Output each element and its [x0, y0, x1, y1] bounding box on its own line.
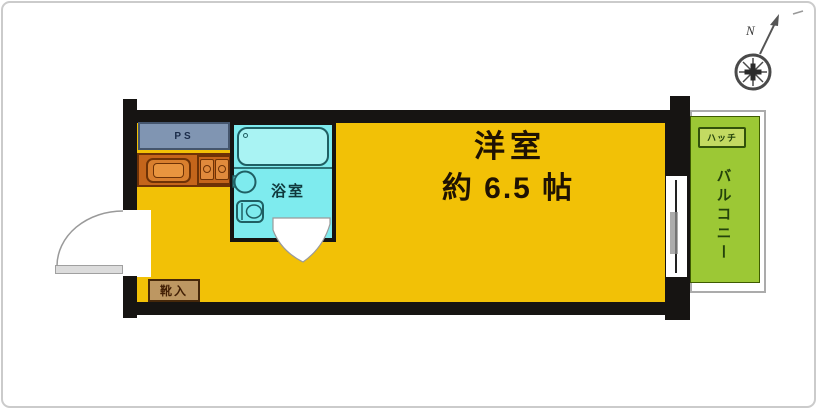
stove-burner-ring: [203, 165, 211, 173]
window-handle: [670, 212, 678, 254]
pipe-space-box: PS: [138, 122, 230, 150]
toilet-icon: [237, 201, 263, 222]
shoe-storage-box: 靴入: [148, 279, 200, 302]
room-size-wrap: 約 6.5 帖: [398, 172, 618, 205]
bathroom-door-swing: [270, 215, 334, 267]
room-size-label: 約 6.5 帖: [442, 172, 574, 205]
balcony-label-wrap: バルコニー: [712, 158, 734, 273]
washbasin-icon: [235, 172, 256, 193]
stove-burner-ring: [218, 165, 226, 173]
compass-north-label: N: [745, 23, 756, 38]
compass-arrowhead: [770, 14, 779, 26]
compass-icon: N: [715, 5, 815, 105]
room-label-wrap: 洋室: [400, 130, 620, 164]
hatch-box: ハッチ: [698, 127, 746, 148]
balcony-label: バルコニー: [713, 168, 734, 263]
room-label: 洋室: [474, 130, 546, 164]
kitchen-sink-basin: [153, 163, 184, 178]
bathroom-label-wrap: 浴室: [264, 182, 312, 198]
bathtub-drain: [243, 133, 248, 138]
floorplan-canvas: PS 浴室 靴入 ハッチ バルコニー: [0, 0, 819, 411]
shoe-storage-label: 靴入: [160, 282, 188, 299]
pipe-space-label: PS: [174, 131, 193, 142]
compass-corner-mark: [793, 11, 803, 14]
entrance-step: [137, 210, 151, 277]
wall-bottom: [123, 302, 690, 315]
bath-fixtures: [230, 168, 272, 230]
bathtub: [237, 127, 329, 166]
entrance-door-arc: [50, 205, 130, 275]
bathroom-label: 浴室: [271, 180, 305, 201]
hatch-label: ハッチ: [707, 131, 737, 144]
